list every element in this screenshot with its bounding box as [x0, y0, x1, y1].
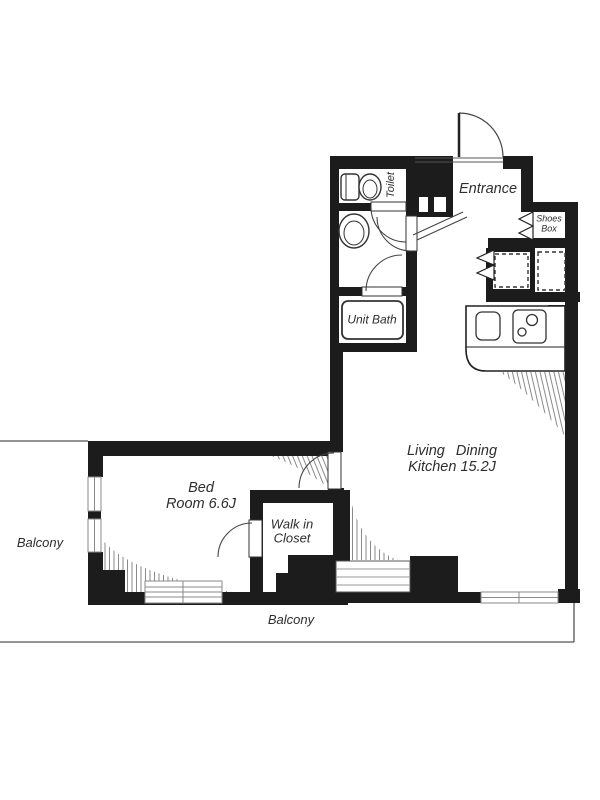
- bedroom-pillar: [97, 570, 125, 592]
- ldk-left-hatch: [352, 505, 398, 560]
- kitchen-counter: [466, 306, 565, 371]
- wall-wic-top: [250, 490, 350, 503]
- toilet-label: Toilet: [385, 172, 397, 198]
- bedroom-left-window-2: [88, 519, 101, 552]
- shoes-box-label: Shoes Box: [536, 214, 562, 235]
- pipe-shaft-1: [419, 197, 428, 212]
- wic-label-line1: Walk in: [271, 517, 313, 532]
- bedroom-left-window-1: [88, 477, 101, 511]
- wic-door: [218, 520, 262, 557]
- unit-bath-door: [362, 255, 402, 296]
- wall-storage-bottom: [486, 292, 580, 302]
- balcony-bottom-label: Balcony: [268, 613, 314, 627]
- floor-plan-drawing: [0, 0, 600, 800]
- wic-storage-step: [276, 573, 290, 593]
- wic-label: Walk in Closet: [271, 518, 313, 547]
- ldk-label-line1: Living Dining: [407, 443, 497, 459]
- washer-space-dashed: [495, 254, 528, 287]
- wall-sanitary-left: [330, 156, 339, 352]
- wall-ldk-bottom: [330, 592, 481, 603]
- bedroom-label: Bed Room 6.6J: [166, 481, 236, 513]
- shoes-box-label-line2: Box: [541, 224, 557, 234]
- toilet-door: [371, 202, 406, 242]
- wall-bedroom-left-upper: [88, 441, 103, 477]
- unit-bath-label: Unit Bath: [347, 313, 396, 326]
- ldk-pillar: [410, 556, 458, 593]
- walls: [88, 156, 580, 605]
- wall-bedroom-left-mullion: [88, 511, 101, 519]
- ldk-bottom-window: [481, 592, 558, 603]
- wall-bath-top-right: [402, 287, 407, 296]
- wall-toilet-bottom: [339, 203, 372, 211]
- wall-top: [332, 156, 415, 169]
- gas-stove-2-burner: [513, 310, 546, 343]
- balcony-left-label: Balcony: [17, 536, 63, 550]
- fridge-space-dashed: [538, 252, 565, 290]
- washbasin: [339, 214, 369, 248]
- kitchen-hatch: [500, 372, 566, 437]
- bedroom-label-line1: Bed: [188, 480, 214, 496]
- wall-sanitary-right-lower: [406, 251, 417, 352]
- wic-label-line2: Closet: [274, 531, 311, 546]
- ldk-label: Living Dining Kitchen 15.2J: [407, 444, 497, 476]
- bedroom-label-line2: Room 6.6J: [166, 496, 236, 512]
- wall-ldk-bottom-corner: [558, 589, 580, 603]
- entrance-door: [415, 113, 503, 162]
- wall-bath-top-left: [339, 287, 363, 296]
- pipe-shaft-2: [434, 197, 446, 212]
- wall-bedroom-top: [88, 441, 332, 456]
- ldk-label-line2: Kitchen 15.2J: [408, 459, 496, 475]
- floor-plan: Toilet Entrance Shoes Box Unit Bath Livi…: [0, 0, 600, 800]
- ldk-low-cabinet: [336, 561, 410, 592]
- wall-entrance-right: [521, 156, 533, 203]
- toilet-fixture: [341, 174, 381, 200]
- wall-sanitary-bottom: [330, 343, 417, 352]
- wall-outer-right: [565, 202, 578, 602]
- shoes-box-folding-door: [519, 212, 533, 240]
- bedroom-bottom-window: [145, 581, 222, 603]
- kitchen-sink: [476, 312, 500, 340]
- shoes-box-label-line1: Shoes: [536, 214, 562, 224]
- wall-ldk-left: [330, 352, 343, 452]
- entrance-label: Entrance: [459, 182, 517, 198]
